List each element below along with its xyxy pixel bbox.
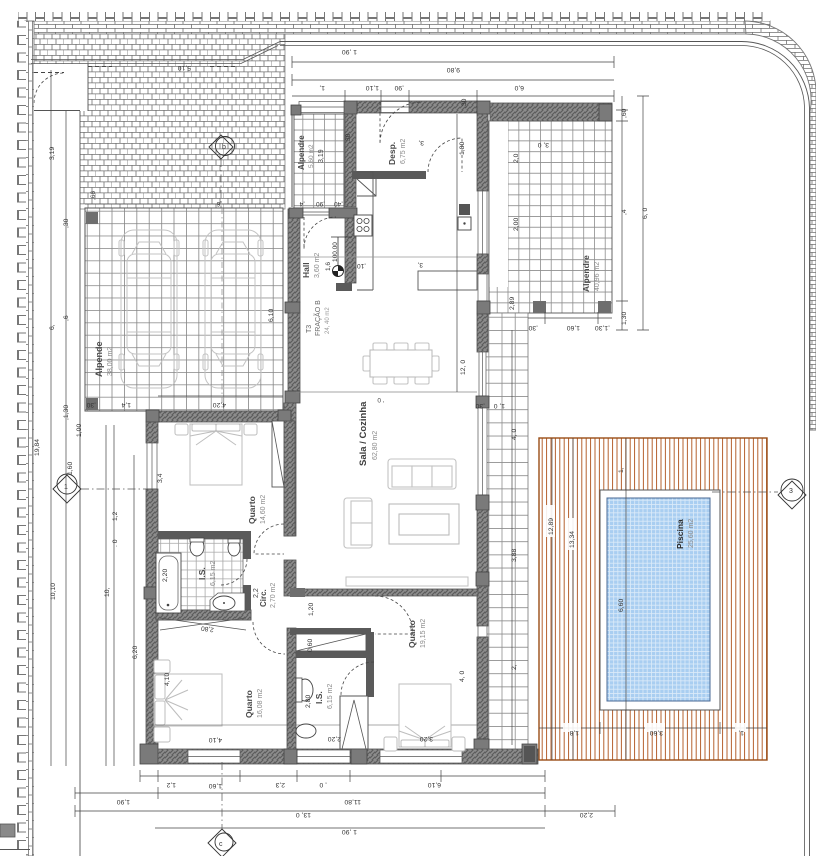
svg-text:,1,30: ,1,30 bbox=[595, 324, 610, 331]
svg-text:2,20: 2,20 bbox=[162, 569, 169, 582]
svg-text:2,3: 2,3 bbox=[275, 781, 285, 788]
svg-text:,4: ,4 bbox=[299, 200, 305, 207]
svg-text:,1,30: ,1,30 bbox=[63, 405, 70, 420]
svg-text:1 ,90: 1 ,90 bbox=[342, 48, 357, 55]
svg-text:I.S.: I.S. bbox=[314, 691, 324, 704]
svg-text:3,: 3, bbox=[418, 139, 424, 146]
svg-text:10,: 10, bbox=[104, 587, 111, 597]
svg-text:1,2: 1,2 bbox=[112, 511, 119, 521]
svg-text:3,88: 3,88 bbox=[511, 549, 518, 562]
svg-text:1,4: 1,4 bbox=[121, 401, 131, 408]
svg-text:,10: ,10 bbox=[357, 262, 366, 269]
svg-text:,30: ,30 bbox=[86, 401, 96, 408]
svg-text:2,70 m2: 2,70 m2 bbox=[270, 583, 277, 608]
svg-text:5,60 m2: 5,60 m2 bbox=[308, 144, 315, 168]
svg-text:13, 0: 13, 0 bbox=[296, 811, 311, 818]
svg-text:4,20: 4,20 bbox=[213, 401, 226, 408]
svg-text:Alpendre: Alpendre bbox=[297, 135, 306, 170]
svg-text:1,10: 1,10 bbox=[366, 84, 379, 91]
svg-text:6,10: 6,10 bbox=[428, 781, 441, 788]
svg-text:,40: ,40 bbox=[334, 200, 343, 207]
svg-text:12,89: 12,89 bbox=[548, 518, 555, 535]
svg-text:,4: ,4 bbox=[621, 209, 628, 215]
svg-text:5,10: 5,10 bbox=[178, 64, 191, 71]
svg-text:Alpende: Alpende bbox=[94, 341, 104, 377]
svg-text:4, 0: 4, 0 bbox=[511, 428, 518, 440]
svg-text:,90: ,90 bbox=[316, 200, 325, 207]
svg-text:6,75 m2: 6,75 m2 bbox=[400, 139, 407, 164]
svg-text:,30: ,30 bbox=[345, 133, 352, 143]
svg-text:4, 0: 4, 0 bbox=[459, 670, 466, 682]
svg-text:Sala / Cozinha: Sala / Cozinha bbox=[358, 401, 369, 466]
svg-text:Desp.: Desp. bbox=[387, 142, 397, 165]
svg-text:1,20: 1,20 bbox=[308, 603, 315, 616]
svg-text:1,60: 1,60 bbox=[567, 324, 580, 331]
svg-text:24, 40 m2: 24, 40 m2 bbox=[325, 307, 331, 334]
svg-text:3, 0: 3, 0 bbox=[537, 141, 549, 148]
svg-text:14,60 m2: 14,60 m2 bbox=[260, 495, 267, 524]
svg-text:2,: 2, bbox=[511, 664, 518, 670]
svg-text:,6: ,6 bbox=[63, 315, 70, 321]
svg-text:' 0: ' 0 bbox=[377, 396, 384, 403]
svg-text:I.S.: I.S. bbox=[197, 567, 207, 580]
svg-text:3,19: 3,19 bbox=[318, 149, 325, 163]
svg-text:19,15 m2: 19,15 m2 bbox=[420, 619, 427, 648]
svg-text:1, 0: 1, 0 bbox=[493, 402, 505, 409]
svg-text:2,20: 2,20 bbox=[580, 811, 593, 818]
svg-text:40,96 m2: 40,96 m2 bbox=[594, 262, 601, 291]
svg-text:Piscina: Piscina bbox=[675, 519, 685, 549]
svg-text:1,60: 1,60 bbox=[67, 462, 74, 475]
svg-text:2,89: 2,89 bbox=[509, 297, 516, 310]
svg-text:2,20: 2,20 bbox=[328, 735, 341, 742]
svg-text:16,08 m2: 16,08 m2 bbox=[257, 689, 264, 718]
svg-text:4,10: 4,10 bbox=[164, 673, 171, 686]
svg-text:1 ,90: 1 ,90 bbox=[342, 828, 357, 835]
svg-text:6,0: 6,0 bbox=[514, 84, 524, 91]
svg-text:Circ.: Circ. bbox=[259, 589, 268, 607]
svg-text:2,00: 2,00 bbox=[513, 218, 520, 231]
svg-text:1,6: 1,6 bbox=[325, 262, 332, 271]
svg-text:,30: ,30 bbox=[475, 402, 485, 409]
svg-text:62,80 m2: 62,80 m2 bbox=[372, 431, 379, 460]
svg-text:Quarto: Quarto bbox=[247, 496, 257, 524]
svg-text:1,30: 1,30 bbox=[621, 312, 628, 325]
svg-text:12, 0: 12, 0 bbox=[460, 360, 467, 375]
svg-text:100.00: 100.00 bbox=[332, 242, 339, 262]
svg-text:2,0: 2,0 bbox=[513, 153, 520, 163]
svg-text:38,00 m2: 38,00 m2 bbox=[107, 347, 114, 376]
svg-text:3,20: 3,20 bbox=[420, 735, 433, 742]
svg-text:1,90: 1,90 bbox=[117, 798, 130, 805]
svg-text:1: 1 bbox=[64, 484, 68, 491]
svg-text:,30: ,30 bbox=[461, 98, 468, 108]
svg-text:T3: T3 bbox=[306, 325, 313, 333]
svg-text:1,: 1, bbox=[738, 729, 744, 736]
svg-text:6, 0: 6, 0 bbox=[642, 207, 649, 219]
svg-text:,66: ,66 bbox=[90, 191, 97, 200]
svg-text:,90: ,90 bbox=[394, 84, 404, 91]
svg-text:1,00: 1,00 bbox=[76, 424, 83, 437]
svg-text:Hall: Hall bbox=[301, 262, 311, 278]
svg-text:FRAÇÃO B: FRAÇÃO B bbox=[313, 300, 322, 336]
svg-text:, 0: , 0 bbox=[319, 781, 327, 788]
svg-text:13,34: 13,34 bbox=[569, 531, 576, 548]
svg-text:3,19: 3,19 bbox=[49, 147, 56, 160]
svg-text:2,2: 2,2 bbox=[253, 588, 260, 598]
svg-text:25,60 m2: 25,60 m2 bbox=[688, 519, 695, 548]
svg-text:,30: ,30 bbox=[63, 218, 70, 228]
svg-text:3,4: 3,4 bbox=[157, 473, 164, 483]
svg-text:c: c bbox=[219, 841, 223, 848]
svg-text:1,60: 1,60 bbox=[209, 782, 222, 789]
svg-text:6,: 6, bbox=[49, 324, 56, 330]
svg-text:6,10: 6,10 bbox=[268, 309, 275, 322]
svg-text:Quarto: Quarto bbox=[244, 690, 254, 718]
svg-text:1,80: 1,80 bbox=[459, 142, 466, 155]
svg-text:6,20: 6,20 bbox=[132, 646, 139, 659]
svg-text:10,10: 10,10 bbox=[50, 583, 57, 600]
svg-text:6,15 m2: 6,15 m2 bbox=[327, 684, 334, 709]
svg-text:4,10: 4,10 bbox=[209, 736, 222, 743]
svg-text:Alpendre: Alpendre bbox=[581, 255, 591, 292]
svg-text:,60: ,60 bbox=[621, 108, 628, 118]
svg-text:. 0: . 0 bbox=[112, 539, 119, 547]
svg-text:Quarto: Quarto bbox=[407, 620, 417, 648]
svg-text:3,: 3, bbox=[417, 261, 423, 268]
svg-text:3: 3 bbox=[789, 488, 793, 495]
svg-text:3,60: 3,60 bbox=[650, 729, 663, 736]
svg-text:6,60: 6,60 bbox=[618, 599, 625, 612]
svg-text:3,60 m2: 3,60 m2 bbox=[314, 253, 321, 278]
svg-text:19,84: 19,84 bbox=[34, 439, 41, 456]
svg-text:6,15 m2: 6,15 m2 bbox=[210, 561, 217, 586]
svg-text:11,80: 11,80 bbox=[344, 798, 361, 805]
svg-text:,30: ,30 bbox=[528, 324, 538, 331]
svg-text:1,: 1, bbox=[618, 467, 625, 473]
svg-text:2,80: 2,80 bbox=[305, 695, 312, 708]
svg-text:b: b bbox=[222, 144, 226, 151]
svg-text:1,2: 1,2 bbox=[166, 781, 176, 788]
svg-text:1,8: 1,8 bbox=[569, 729, 579, 736]
svg-text:0,60: 0,60 bbox=[307, 639, 314, 652]
svg-text:9,80: 9,80 bbox=[447, 66, 460, 73]
svg-text:1,: 1, bbox=[319, 84, 325, 91]
